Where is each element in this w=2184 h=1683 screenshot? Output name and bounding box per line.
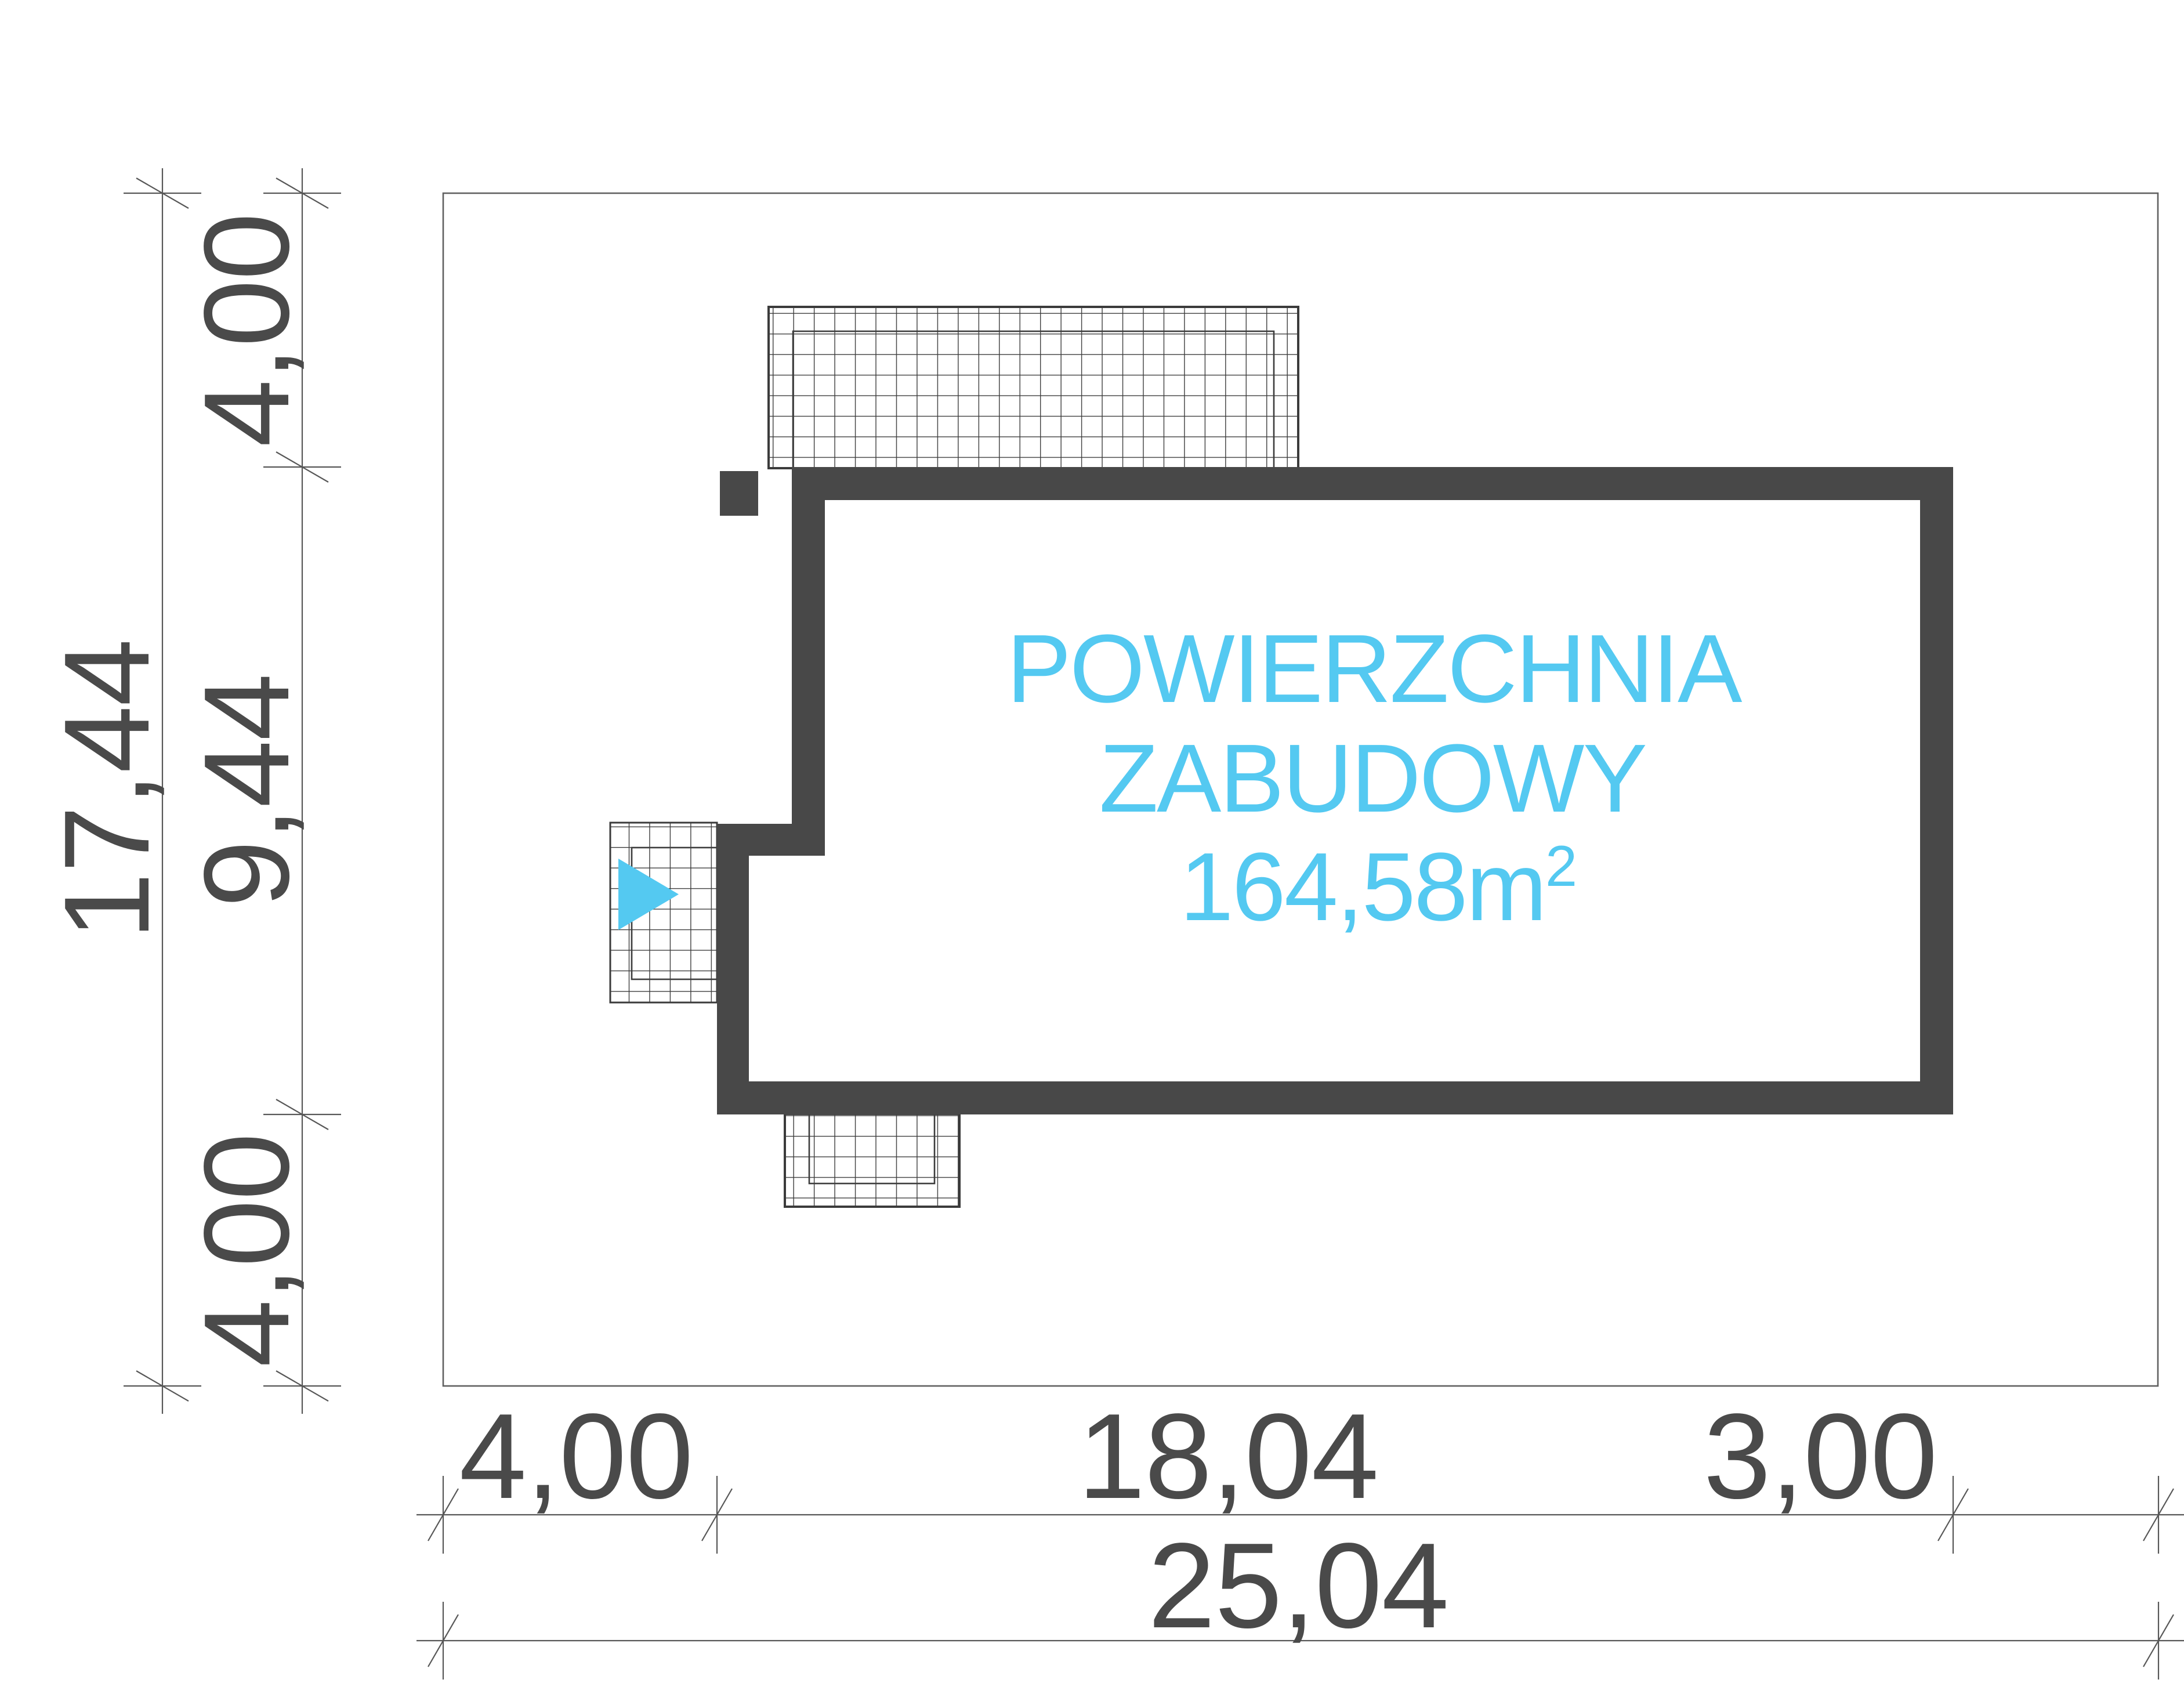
svg-text:25,04: 25,04 bbox=[1148, 1518, 1448, 1653]
svg-text:ZABUDOWY: ZABUDOWY bbox=[1099, 725, 1646, 833]
svg-text:4,00: 4,00 bbox=[459, 1389, 693, 1524]
svg-text:POWIERZCHNIA: POWIERZCHNIA bbox=[1006, 615, 1743, 723]
svg-text:4,00: 4,00 bbox=[179, 213, 314, 447]
svg-text:17,44: 17,44 bbox=[39, 639, 175, 940]
svg-text:4,00: 4,00 bbox=[179, 1134, 314, 1367]
svg-text:164,58m2: 164,58m2 bbox=[1180, 833, 1576, 941]
svg-text:3,00: 3,00 bbox=[1704, 1389, 1937, 1524]
svg-text:18,04: 18,04 bbox=[1078, 1389, 1378, 1524]
svg-text:9,44: 9,44 bbox=[179, 674, 314, 908]
